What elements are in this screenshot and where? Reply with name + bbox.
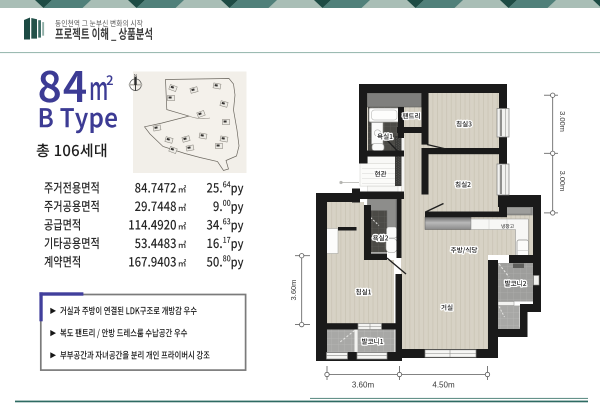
svg-text:3.00m: 3.00m: [558, 171, 567, 192]
svg-text:4.50m: 4.50m: [432, 381, 455, 390]
svg-text:N: N: [134, 73, 137, 78]
svg-text:3.00m: 3.00m: [558, 111, 567, 132]
svg-text:3.60m: 3.60m: [289, 280, 298, 301]
svg-text:3.60m: 3.60m: [352, 381, 375, 390]
